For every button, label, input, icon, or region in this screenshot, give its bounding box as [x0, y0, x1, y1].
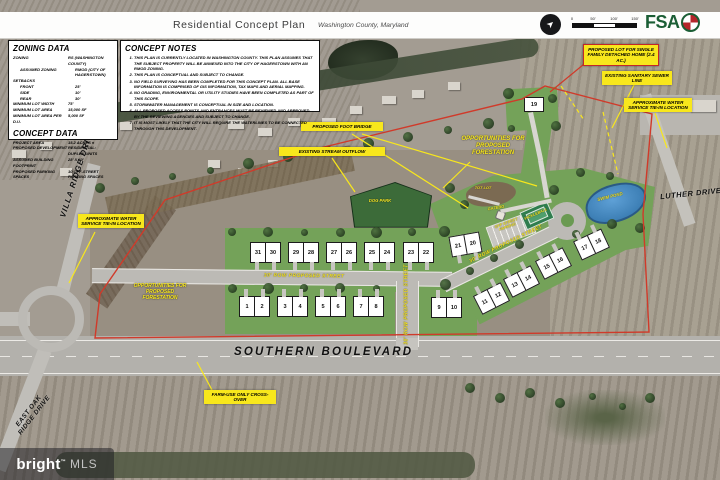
callout-label: FARM-USE ONLY CROSS-OVER [204, 390, 276, 404]
callout-label: EXISTING STREAM OUTFLOW [279, 147, 385, 156]
tree [207, 167, 214, 174]
fsa-logo-icon [681, 13, 700, 32]
scale-bar-segments [572, 23, 637, 28]
tree [607, 219, 617, 229]
data-row: ASSUMED ZONINGRMOD (CITY OF HAGERSTOWN) [13, 67, 113, 79]
lot-number: 22 [418, 243, 433, 262]
amenity-label: DOG PARK [365, 199, 395, 204]
tree [619, 403, 626, 410]
watermark-suffix: MLS [70, 457, 98, 471]
data-row-value: 28' X 40' [68, 157, 113, 169]
data-row-label: MINIMUM LOT AREA PER D.U. [13, 113, 68, 125]
duplex-lot: 34 [277, 296, 308, 317]
road-name-label: SOUTHERN BOULEVARD [234, 346, 413, 358]
fsa-logo: FSA [645, 12, 700, 33]
building-top-right [690, 100, 716, 112]
concept-note-item: NO GRADING, ENVIRONMENTAL OR UTILITY STU… [134, 90, 315, 101]
page-title: Residential Concept Plan [173, 19, 305, 31]
lot-number: 8 [368, 297, 383, 316]
lot-number: 5 [316, 297, 330, 316]
data-row: ASSUMED BUILDING FOOTPRINT28' X 40' [13, 157, 113, 169]
tree [228, 228, 236, 236]
callout-label: EXISTING SANITARY SEWER LINE [602, 71, 672, 85]
tree [466, 267, 474, 275]
lot-number: 9 [432, 298, 446, 317]
lot-number: 2 [254, 297, 269, 316]
lot-number: 26 [341, 243, 356, 262]
data-row-label: PROPOSED PARKING SPACES [13, 169, 68, 181]
data-row-value: RESIDENTIAL: DUPLEX UNITS [68, 145, 113, 157]
duplex-lot: 12 [239, 296, 270, 317]
tree [169, 173, 176, 180]
concept-data-title: CONCEPT DATA [13, 129, 113, 138]
tree [440, 279, 451, 290]
tree [548, 94, 557, 103]
lot-number: 20 [463, 233, 481, 254]
lot-number: 6 [330, 297, 345, 316]
tree [263, 227, 273, 237]
duplex-lot: 3130 [250, 242, 281, 263]
site-plan-canvas: 3130292827262524232212345678910111213141… [0, 0, 720, 480]
data-row-label: PROPOSED DEVELOPMENT [13, 145, 68, 157]
data-row: PROPOSED DEVELOPMENTRESIDENTIAL: DUPLEX … [13, 145, 113, 157]
duplex-lot: 2928 [288, 242, 319, 263]
tree [576, 168, 585, 177]
callout-label: PROPOSED LOT FOR SINGLE FAMILY DETACHED … [583, 44, 659, 66]
duplex-lot: 56 [315, 296, 346, 317]
callout-label: OPPORTUNITIES FOR PROPOSED FORESTATION [456, 136, 530, 158]
duplex-lot: 2524 [364, 242, 395, 263]
tree [645, 393, 655, 403]
tree [403, 132, 413, 142]
lot-number: 31 [251, 243, 265, 262]
amenity-label: TOT LOT [471, 186, 495, 190]
concept-note-item: NO FIELD SURVEYING HAS BEEN COMPLETED FO… [134, 79, 315, 90]
lot-number: 28 [303, 243, 318, 262]
existing-house [412, 90, 424, 98]
tree [465, 383, 475, 393]
lot-number: 3 [278, 297, 292, 316]
concept-notes-panel: CONCEPT NOTES THIS PLAN IS CURRENTLY LOC… [120, 40, 320, 112]
north-arrow-icon: ➤ [540, 14, 561, 35]
concept-notes-list: THIS PLAN IS CURRENTLY LOCATED IN WASHIN… [125, 55, 315, 131]
lot-number: 10 [446, 298, 461, 317]
lot-number: 29 [289, 243, 303, 262]
tree [408, 228, 416, 236]
zoning-data-rows: ZONINGRS (WASHINGTON COUNTY)ASSUMED ZONI… [13, 55, 113, 125]
tree [549, 185, 559, 195]
scale-tick: 50' [590, 16, 595, 21]
lot-number: 24 [379, 243, 394, 262]
tree [131, 177, 139, 185]
callout-label: OPPORTUNITIES FOR PROPOSED FORESTATION [131, 283, 189, 301]
concept-note-item: ALL PROPOSED ACCESS POINTS AND ENTRANCES… [134, 108, 315, 119]
existing-house [382, 96, 396, 104]
data-row-label: ASSUMED ZONING [13, 67, 75, 79]
single-family-lot: 19 [524, 97, 544, 112]
tree [444, 126, 452, 134]
concept-data-rows: PROJECT AREA15.2 ACRES ±PROPOSED DEVELOP… [13, 140, 113, 181]
tree [525, 388, 535, 398]
hedgerow-bottom [55, 452, 475, 478]
data-row-value: 10 OFF-STREET PARKING SPACES [68, 169, 113, 181]
watermark-brand: bright™ [16, 456, 66, 473]
fsa-logo-text: FSA [645, 12, 680, 33]
lot-number: 27 [327, 243, 341, 262]
tree [495, 393, 505, 403]
existing-house [448, 82, 460, 90]
roundabout [18, 286, 84, 352]
duplex-lot: 2726 [326, 242, 357, 263]
concept-notes-title: CONCEPT NOTES [125, 44, 315, 53]
data-row: ZONINGRS (WASHINGTON COUNTY) [13, 55, 113, 67]
scale-tick: 0 [571, 16, 573, 21]
concept-note-item: STORMWATER MANAGEMENT IS CONCEPTUAL IN S… [134, 102, 315, 108]
tree [555, 398, 565, 408]
callout-label: APPROXIMATE WATER SERVICE TIE-IN LOCATIO… [624, 98, 692, 112]
data-row-label: ZONING [13, 55, 68, 67]
tree [551, 121, 561, 131]
concept-note-item: IT IS MOST LIKELY THAT THE CITY WILL REQ… [134, 120, 315, 131]
tree [490, 254, 498, 262]
tree [635, 223, 645, 233]
proposed-street-label: 30' ROW PROPOSED STREET [405, 252, 410, 358]
zoning-data-title: ZONING DATA [13, 44, 113, 53]
callout-label: APPROXIMATE WATER SERVICE TIE-IN LOCATIO… [78, 214, 144, 228]
concept-note-item: THIS PLAN IS CURRENTLY LOCATED IN WASHIN… [134, 55, 315, 72]
title-bar: Residential Concept Plan Washington Coun… [0, 12, 720, 39]
scale-tick: 150' [631, 16, 638, 21]
lot-number: 1 [240, 297, 254, 316]
brightmls-watermark: bright™ MLS [0, 448, 114, 480]
cul-de-sac-island [561, 214, 574, 227]
data-row-label: ASSUMED BUILDING FOOTPRINT [13, 157, 68, 169]
tree [606, 172, 614, 180]
zoning-concept-data-panel: ZONING DATA ZONINGRS (WASHINGTON COUNTY)… [8, 40, 118, 140]
data-row-value: RS (WASHINGTON COUNTY) [68, 55, 113, 67]
tree [301, 229, 308, 236]
tree [589, 393, 596, 400]
scale-tick: 100' [610, 16, 617, 21]
lot-number: 30 [265, 243, 280, 262]
tree [445, 183, 455, 193]
lot-number: 7 [354, 297, 368, 316]
tree [439, 226, 450, 237]
tree [371, 227, 382, 238]
data-row: PROPOSED PARKING SPACES10 OFF-STREET PAR… [13, 169, 113, 181]
page-subtitle: Washington County, Maryland [318, 22, 408, 29]
lot-number: 4 [292, 297, 307, 316]
tree [336, 228, 345, 237]
data-row-value: 5,000 SF [68, 113, 113, 125]
data-row-value: RMOD (CITY OF HAGERSTOWN) [75, 67, 113, 79]
scale-tick-labels: 050'100'150' [572, 16, 638, 22]
scale-bar: 050'100'150' [572, 16, 638, 30]
lot-number: 25 [365, 243, 379, 262]
tree [508, 125, 515, 132]
existing-house [350, 106, 362, 114]
tree [243, 158, 254, 169]
tree [460, 200, 469, 209]
concept-note-item: THIS PLAN IS CONCEPTUAL AND SUBJECT TO C… [134, 72, 315, 78]
tree [228, 284, 237, 293]
duplex-lot: 910 [431, 297, 462, 318]
tree [483, 118, 494, 129]
tree [503, 88, 514, 99]
duplex-lot: 78 [353, 296, 384, 317]
tree [95, 183, 105, 193]
data-row: MINIMUM LOT AREA PER D.U.5,000 SF [13, 113, 113, 125]
